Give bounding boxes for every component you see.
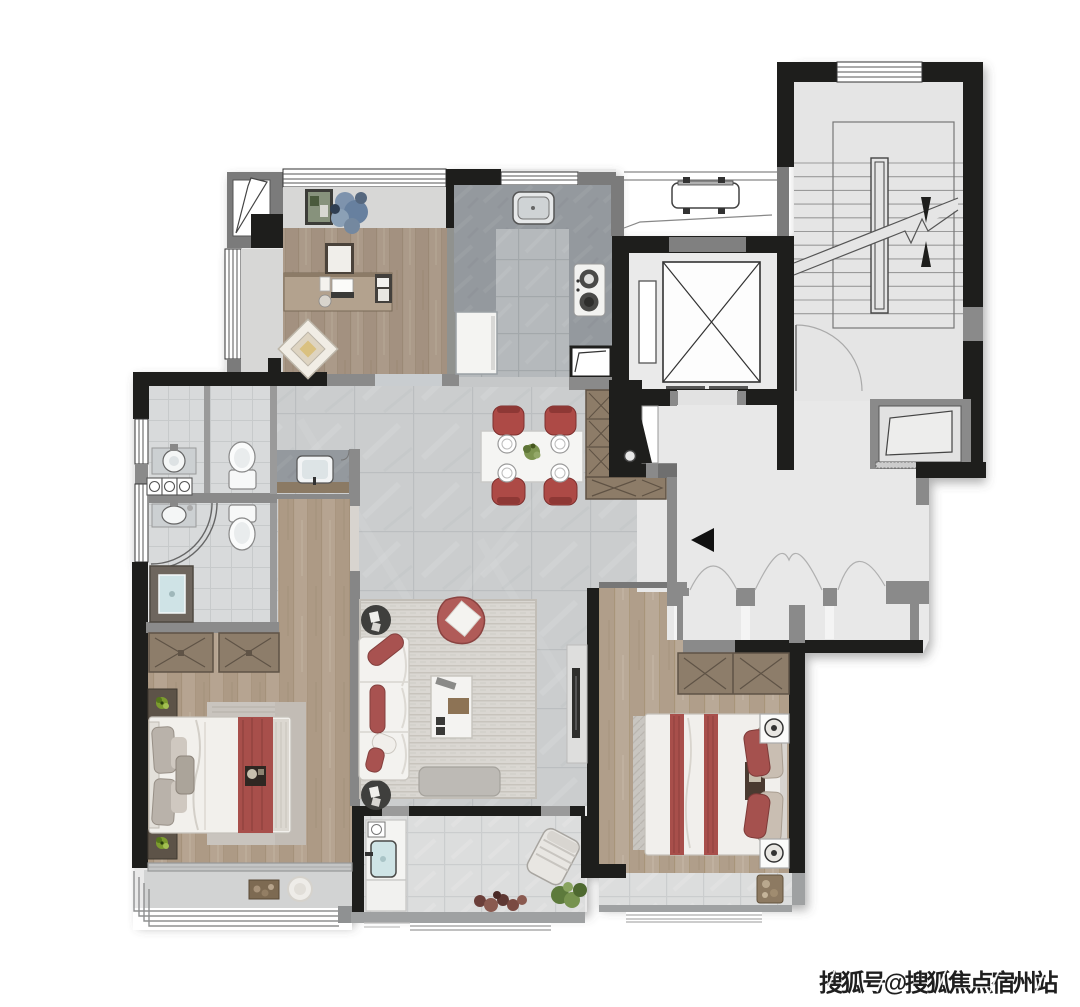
- svg-text:搜狐号@搜狐焦点宿州站: 搜狐号@搜狐焦点宿州站: [819, 969, 1058, 997]
